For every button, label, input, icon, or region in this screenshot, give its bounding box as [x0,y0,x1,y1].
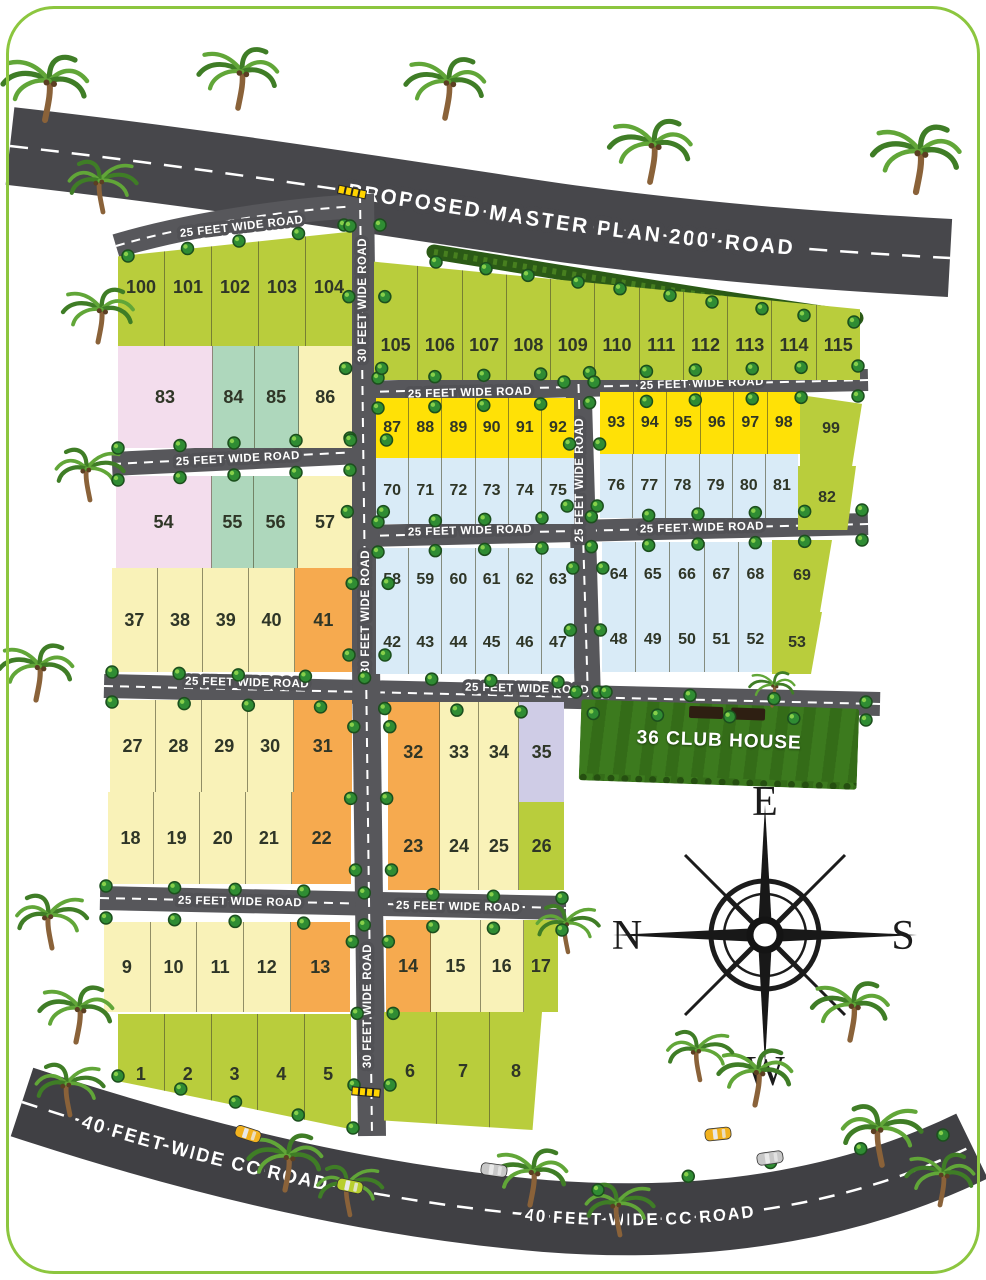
plot-62: 62 [509,548,542,612]
plot-97: 97 [734,392,768,454]
plot-number: 82 [818,489,836,507]
plot-number: 102 [220,277,250,298]
plot-number: 47 [549,634,567,652]
plot-60: 60 [442,548,475,612]
plot-number: 71 [416,482,434,500]
plot-number: 54 [153,512,173,533]
plot-number: 104 [314,277,344,298]
plot-number: 70 [383,482,401,500]
plot-number: 113 [735,335,764,356]
plot-block-42-47: 424344454647 [376,612,574,674]
plot-96: 96 [701,392,735,454]
parked-car-icon [731,707,765,720]
plot-number: 83 [155,387,175,408]
plot-number: 37 [124,610,144,631]
plot-number: 74 [516,482,534,500]
plot-number: 68 [747,566,765,584]
plot-number: 88 [416,419,434,437]
plot-42: 42 [376,612,409,674]
plot-number: 73 [483,482,501,500]
plot-number: 42 [383,634,401,652]
plot-block-23-26: 23242526 [388,802,564,890]
plot-90: 90 [476,398,509,458]
plot-number: 59 [416,571,434,589]
plot-10: 10 [151,922,198,1012]
plot-number: 56 [265,512,285,533]
plot-number: 24 [449,836,469,857]
plot-number: 101 [173,277,203,298]
plot-number: 95 [674,414,692,432]
plot-block-76-81: 767778798081 [600,454,798,518]
plot-number: 96 [708,414,726,432]
plot-85: 85 [255,346,299,448]
road-label: 30 FEET WIDE ROAD [357,238,369,362]
plot-number: 51 [712,631,730,649]
plot-number: 20 [213,828,233,849]
plot-75: 75 [542,458,574,524]
plot-74: 74 [509,458,542,524]
plot-33: 33 [440,702,480,802]
plot-107: 107 [463,258,507,380]
plot-number: 39 [216,610,236,631]
compass-svg: E N S W [600,770,930,1100]
plot-83: 83 [118,346,213,448]
plot-number: 9 [122,957,132,978]
plot-number: 105 [381,335,411,356]
plot-12: 12 [244,922,291,1012]
plot-number: 92 [549,419,567,437]
plot-block-54-57: 54555657 [116,476,352,568]
road-label: 30 FEET WIDE ROAD [360,550,372,674]
plot-number: 25 [489,836,509,857]
plot-65: 65 [636,542,670,608]
plot-13: 13 [291,922,350,1012]
plot-18: 18 [108,792,154,884]
plot-number: 19 [167,828,187,849]
plot-number: 22 [312,828,332,849]
plot-number: 40 [261,610,281,631]
clubhouse-label: 36 CLUB HOUSE [636,727,802,755]
plot-26: 26 [519,802,564,890]
plot-54: 54 [116,476,212,568]
plot-block-9-13: 910111213 [104,922,350,1012]
plot-43: 43 [409,612,442,674]
plot-number: 26 [532,836,552,857]
plot-number: 27 [122,736,142,757]
plot-number: 109 [558,335,588,356]
plot-80: 80 [733,454,766,518]
plot-94: 94 [634,392,668,454]
plot-block-93-98: 939495969798 [600,392,800,454]
plot-30: 30 [248,700,294,792]
plot-49: 49 [636,608,670,672]
plot-number: 61 [483,571,501,589]
compass-center [750,920,780,950]
plot-number: 94 [641,414,659,432]
plot-number: 115 [824,335,853,356]
plot-block-58-63: 585960616263 [376,548,574,612]
plot-82: 82 [798,466,856,530]
plot-number: 99 [822,420,840,438]
plot-number: 21 [259,828,279,849]
plot-20: 20 [200,792,246,884]
plot-block-83-86: 83848586 [118,346,352,448]
plot-number: 91 [516,419,534,437]
plot-layout-map: PROPOSED MASTER PLAN 200' ROAD 40 FEET W… [0,0,986,1280]
plot-number: 13 [310,957,330,978]
plot-number: 89 [450,419,468,437]
compass-north-label: N [612,913,642,959]
plot-number: 76 [607,477,625,495]
plot-102: 102 [212,228,259,346]
plot-70: 70 [376,458,409,524]
plot-number: 103 [267,277,297,298]
plot-24: 24 [440,802,480,890]
plot-86: 86 [299,346,352,448]
plot-number: 43 [416,634,434,652]
plot-number: 63 [549,571,567,589]
plot-58: 58 [376,548,409,612]
plot-number: 35 [532,742,552,763]
plot-number: 106 [425,335,455,356]
plot-number: 58 [383,571,401,589]
plot-number: 18 [121,828,141,849]
plot-37: 37 [112,568,158,672]
plot-57: 57 [298,476,352,568]
plot-38: 38 [158,568,204,672]
plot-number: 66 [678,566,696,584]
plot-34: 34 [479,702,519,802]
plot-22: 22 [292,792,351,884]
plot-number: 48 [610,631,628,649]
plot-number: 15 [445,956,465,977]
plot-number: 100 [126,277,156,298]
plot-71: 71 [409,458,442,524]
plot-number: 81 [773,477,791,495]
plot-block-32-35: 32333435 [388,702,564,802]
plot-number: 23 [403,836,423,857]
plot-number: 53 [788,634,806,652]
plot-99: 99 [800,392,862,466]
plot-number: 12 [257,957,277,978]
plot-79: 79 [700,454,733,518]
road-label: 30 FEET WIDE ROAD [362,944,374,1068]
plot-number: 7 [458,1061,468,1082]
plot-87: 87 [376,398,409,458]
plot-59: 59 [409,548,442,612]
plot-93: 93 [600,392,634,454]
plot-89: 89 [442,398,475,458]
plot-63: 63 [542,548,574,612]
plot-number: 69 [793,567,811,585]
compass-east-label: E [752,779,778,825]
plot-73: 73 [476,458,509,524]
plot-47: 47 [542,612,574,674]
plot-number: 55 [222,512,242,533]
plot-number: 1 [136,1064,146,1085]
plot-number: 14 [398,956,418,977]
plot-99: 99 [800,392,862,466]
plot-15: 15 [431,920,480,1012]
plot-number: 41 [313,610,333,631]
plot-number: 110 [602,335,631,356]
plot-number: 44 [450,634,468,652]
plot-number: 60 [450,571,468,589]
plot-number: 85 [266,387,286,408]
plot-number: 78 [674,477,692,495]
plot-50: 50 [670,608,704,672]
plot-25: 25 [479,802,519,890]
plot-91: 91 [509,398,542,458]
plot-81: 81 [766,454,798,518]
plot-block-27-31: 2728293031 [110,700,352,792]
plot-66: 66 [670,542,704,608]
plot-number: 80 [740,477,758,495]
plot-number: 72 [450,482,468,500]
plot-number: 34 [489,742,509,763]
plot-number: 57 [315,512,335,533]
plot-35: 35 [519,702,564,802]
plot-number: 32 [403,742,423,763]
plot-67: 67 [705,542,739,608]
plot-23: 23 [388,802,440,890]
plot-9: 9 [104,922,151,1012]
plot-76: 76 [600,454,633,518]
plot-46: 46 [509,612,542,674]
plot-51: 51 [705,608,739,672]
plot-68: 68 [739,542,772,608]
plot-72: 72 [442,458,475,524]
plot-number: 11 [211,957,230,978]
plot-number: 29 [214,736,234,757]
plot-number: 28 [168,736,188,757]
plot-11: 11 [197,922,244,1012]
plot-number: 86 [315,387,335,408]
plot-number: 79 [707,477,725,495]
plot-number: 16 [492,956,512,977]
plot-7: 7 [437,1012,490,1130]
plot-number: 31 [313,736,333,757]
compass-west-label: W [745,1049,785,1095]
plot-number: 62 [516,571,534,589]
compass-south-label: S [891,913,914,959]
plot-number: 93 [607,414,625,432]
plot-27: 27 [110,700,156,792]
plot-105: 105 [374,258,418,380]
plot-21: 21 [246,792,292,884]
plot-82: 82 [798,466,856,530]
plot-number: 2 [183,1064,193,1085]
plot-106: 106 [418,258,462,380]
plot-number: 65 [644,566,662,584]
plot-number: 87 [383,419,401,437]
plot-31: 31 [294,700,352,792]
plot-61: 61 [476,548,509,612]
plot-number: 84 [223,387,243,408]
plot-number: 75 [549,482,567,500]
plot-number: 97 [741,414,759,432]
plot-number: 46 [516,634,534,652]
plot-17: 17 [524,920,558,1012]
plot-92: 92 [542,398,574,458]
plot-32: 32 [388,702,440,802]
plot-number: 30 [260,736,280,757]
plot-number: 5 [323,1064,333,1085]
plot-block-70-75: 707172737475 [376,458,574,524]
plot-19: 19 [154,792,200,884]
plot-block-14-17: 14151617 [386,920,558,1012]
plot-number: 111 [647,335,675,356]
plot-number: 107 [469,335,499,356]
plot-number: 108 [513,335,543,356]
plot-block-87-92: 878889909192 [376,398,574,458]
plot-number: 67 [712,566,730,584]
plot-56: 56 [254,476,298,568]
plot-number: 8 [511,1061,521,1082]
plot-98: 98 [768,392,801,454]
plot-64: 64 [602,542,636,608]
plot-6: 6 [384,1012,437,1130]
plot-number: 17 [531,956,551,977]
plot-number: 49 [644,631,662,649]
plot-103: 103 [259,228,306,346]
plot-16: 16 [481,920,524,1012]
plot-block-18-22: 1819202122 [108,792,351,884]
plot-number: 112 [691,335,720,356]
plot-40: 40 [249,568,295,672]
plot-number: 10 [163,957,183,978]
plot-95: 95 [667,392,701,454]
plot-number: 52 [747,631,765,649]
parked-car-icon [689,706,723,719]
plot-number: 45 [483,634,501,652]
road-label: 25 FEET WIDE ROAD [574,418,586,542]
plot-number: 77 [640,477,658,495]
plot-block-37-41: 3738394041 [112,568,352,672]
plot-78: 78 [666,454,699,518]
plot-number: 114 [780,335,809,356]
plot-number: 50 [678,631,696,649]
plot-55: 55 [212,476,254,568]
plot-number: 3 [229,1064,239,1085]
plot-45: 45 [476,612,509,674]
compass-rose-icon: E N S W [600,770,930,1100]
plot-number: 90 [483,419,501,437]
plot-number: 6 [405,1061,415,1082]
plot-88: 88 [409,398,442,458]
plot-77: 77 [633,454,666,518]
plot-number: 64 [610,566,628,584]
plot-number: 4 [276,1064,286,1085]
plot-number: 33 [449,742,469,763]
plot-block-64-68: 6465666768 [602,542,772,608]
plot-block-48-52: 4849505152 [602,608,772,672]
plot-block-6-8: 678 [384,1012,542,1130]
plot-44: 44 [442,612,475,674]
plot-5: 5 [305,1014,351,1134]
plot-39: 39 [203,568,249,672]
plot-29: 29 [202,700,248,792]
plot-84: 84 [213,346,255,448]
plot-number: 38 [170,610,190,631]
plot-14: 14 [386,920,431,1012]
plot-41: 41 [295,568,352,672]
plot-104: 104 [306,228,352,346]
plot-28: 28 [156,700,202,792]
plot-number: 98 [775,414,793,432]
plot-48: 48 [602,608,636,672]
plot-52: 52 [739,608,772,672]
